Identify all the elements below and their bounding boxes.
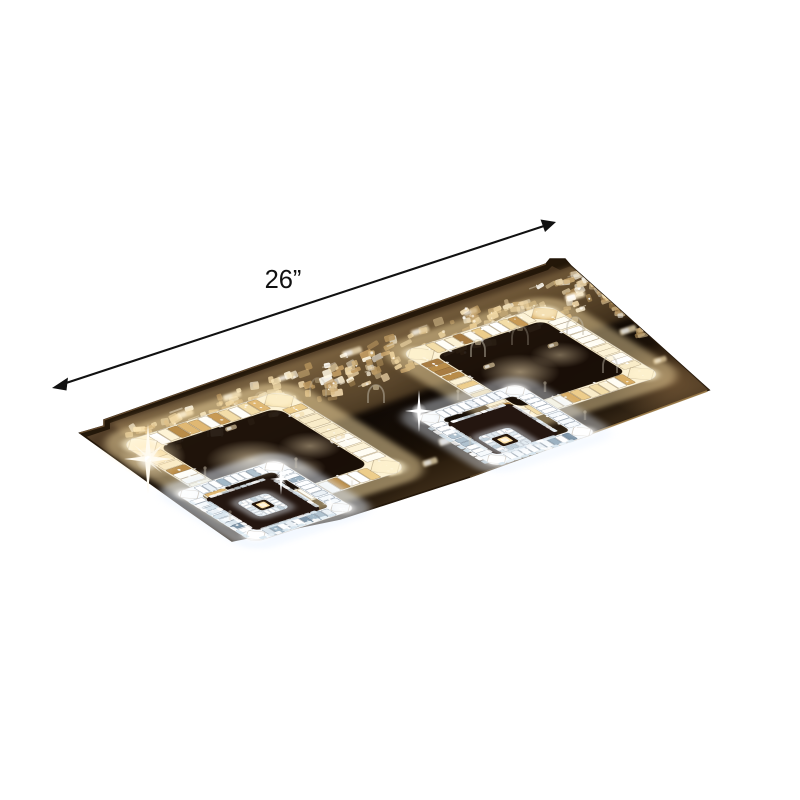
svg-text:26”: 26” — [265, 266, 302, 294]
